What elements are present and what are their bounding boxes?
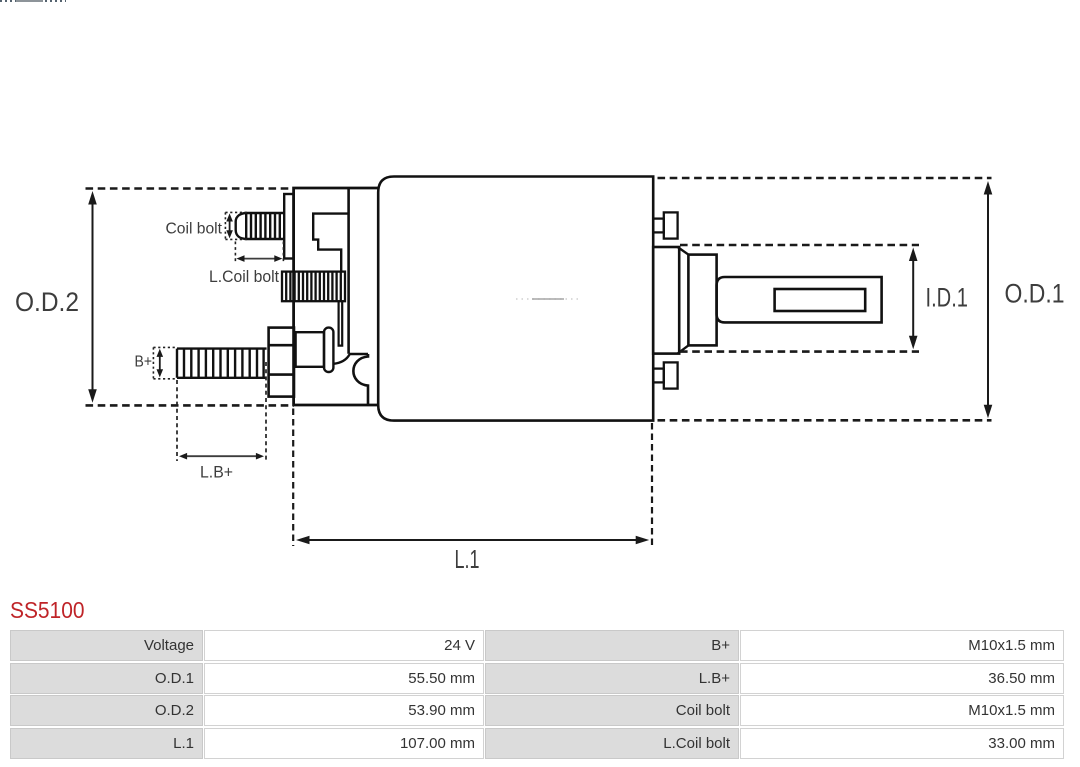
svg-text:O.D.1: O.D.1	[1005, 279, 1065, 309]
svg-text:Coil bolt: Coil bolt	[166, 221, 223, 238]
svg-text:L.Coil bolt: L.Coil bolt	[209, 267, 279, 286]
svg-text:L.1: L.1	[455, 544, 480, 574]
svg-text:B+: B+	[135, 354, 153, 371]
svg-text:O.D.2: O.D.2	[15, 287, 79, 317]
svg-text:I.D.1: I.D.1	[926, 283, 969, 313]
svg-text:L.B+: L.B+	[200, 463, 233, 482]
